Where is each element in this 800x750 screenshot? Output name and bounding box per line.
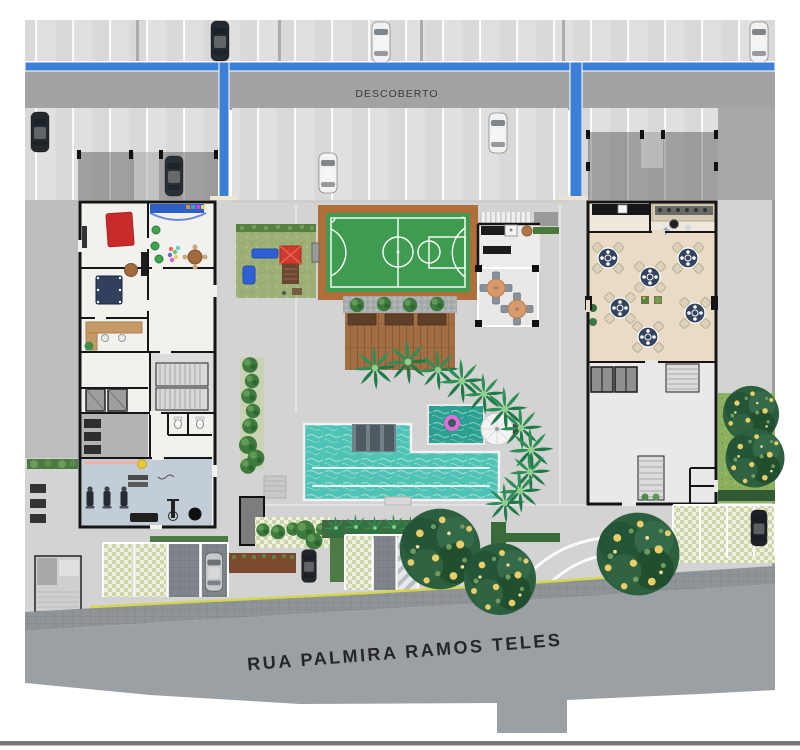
- billiards-table: [96, 276, 122, 304]
- playground: [236, 224, 316, 298]
- left-building: [80, 202, 215, 527]
- grill-top: [522, 226, 532, 236]
- bush-icon: [306, 533, 323, 550]
- side-yard-left: [25, 200, 78, 458]
- blue-line-vertical-right: [570, 62, 582, 197]
- wall-counter: [141, 252, 147, 276]
- hedge-vertical: [330, 538, 344, 582]
- bush-icon: [350, 298, 364, 312]
- stairs: [156, 363, 208, 410]
- bbq-counter-2: [483, 246, 511, 254]
- hedge: [533, 227, 559, 234]
- office-desk: [86, 322, 142, 333]
- tree-icon: [725, 428, 784, 487]
- right-building: [585, 202, 718, 504]
- car-icon: [165, 156, 183, 196]
- stairs-lower: [638, 456, 664, 500]
- office-chair: [119, 335, 126, 342]
- empty-stall: [134, 152, 159, 200]
- red-rug: [106, 212, 134, 247]
- car-icon: [751, 510, 767, 546]
- blue-line-horizontal: [25, 62, 775, 71]
- tree-icon: [464, 543, 536, 615]
- pool-steps-side: [264, 476, 286, 498]
- sideboard: [82, 226, 87, 248]
- plant: [642, 494, 649, 501]
- hedge: [236, 224, 316, 232]
- blue-line-vertical-left: [219, 62, 229, 197]
- pot: [670, 220, 679, 229]
- top-parking-row: [25, 20, 775, 62]
- car-icon: [205, 553, 222, 591]
- site-plan: DESCOBERTO: [0, 0, 800, 750]
- exercise-ball-yellow: [138, 460, 147, 469]
- spin-bike: [171, 500, 175, 518]
- car-icon: [372, 22, 390, 62]
- stairs-upper: [666, 364, 699, 392]
- pergola-terrace: [478, 268, 538, 326]
- street-parking-left: [103, 536, 228, 597]
- spring-toy: [282, 291, 286, 295]
- deck-zone: [343, 296, 457, 370]
- office-chair: [102, 335, 109, 342]
- hedge: [718, 490, 775, 501]
- kids-cabinet: [150, 204, 204, 213]
- gym-bench: [130, 513, 158, 522]
- right-lawn: [718, 386, 785, 503]
- faucet: [510, 229, 513, 232]
- submerged-loungers: [356, 425, 394, 451]
- hedge: [506, 533, 560, 542]
- goal-left: [312, 243, 319, 262]
- pool-steps: [385, 497, 411, 505]
- side-hedge-row: [27, 459, 78, 469]
- plant: [653, 494, 660, 501]
- bottom-border-line: [0, 741, 800, 746]
- bush-icon: [430, 297, 444, 311]
- medicine-ball: [189, 508, 202, 521]
- tree-icon: [597, 513, 680, 596]
- car-icon: [489, 113, 507, 153]
- ramp-area: [718, 108, 775, 200]
- car-icon: [302, 550, 317, 583]
- car-icon: [31, 112, 49, 152]
- plant: [85, 342, 94, 351]
- street-parking-right: [673, 505, 775, 563]
- deck-benches: [348, 314, 446, 325]
- play-slide: [243, 266, 255, 284]
- car-icon: [211, 21, 229, 61]
- gym-stripe: [84, 461, 144, 464]
- playground-grass: [236, 226, 316, 298]
- center-dot: [397, 251, 400, 254]
- car-icon: [319, 153, 337, 193]
- storage-shelves: [84, 419, 101, 454]
- round-table: [125, 264, 138, 277]
- empty-stall: [641, 132, 663, 168]
- car-icon: [750, 22, 768, 62]
- parking-stalls-middle: [232, 108, 568, 200]
- descoberto-label: DESCOBERTO: [355, 88, 438, 100]
- bush-icon: [377, 297, 391, 311]
- round-table: [188, 250, 202, 264]
- play-bridge: [252, 249, 278, 258]
- plant: [589, 318, 597, 326]
- sports-court: [312, 205, 484, 300]
- benches: [30, 484, 46, 523]
- site-plan-canvas: DESCOBERTO: [0, 0, 800, 750]
- kitchen-sink: [618, 205, 627, 213]
- bush-icon: [403, 298, 417, 312]
- play-bench: [292, 288, 302, 295]
- hedge: [150, 536, 228, 542]
